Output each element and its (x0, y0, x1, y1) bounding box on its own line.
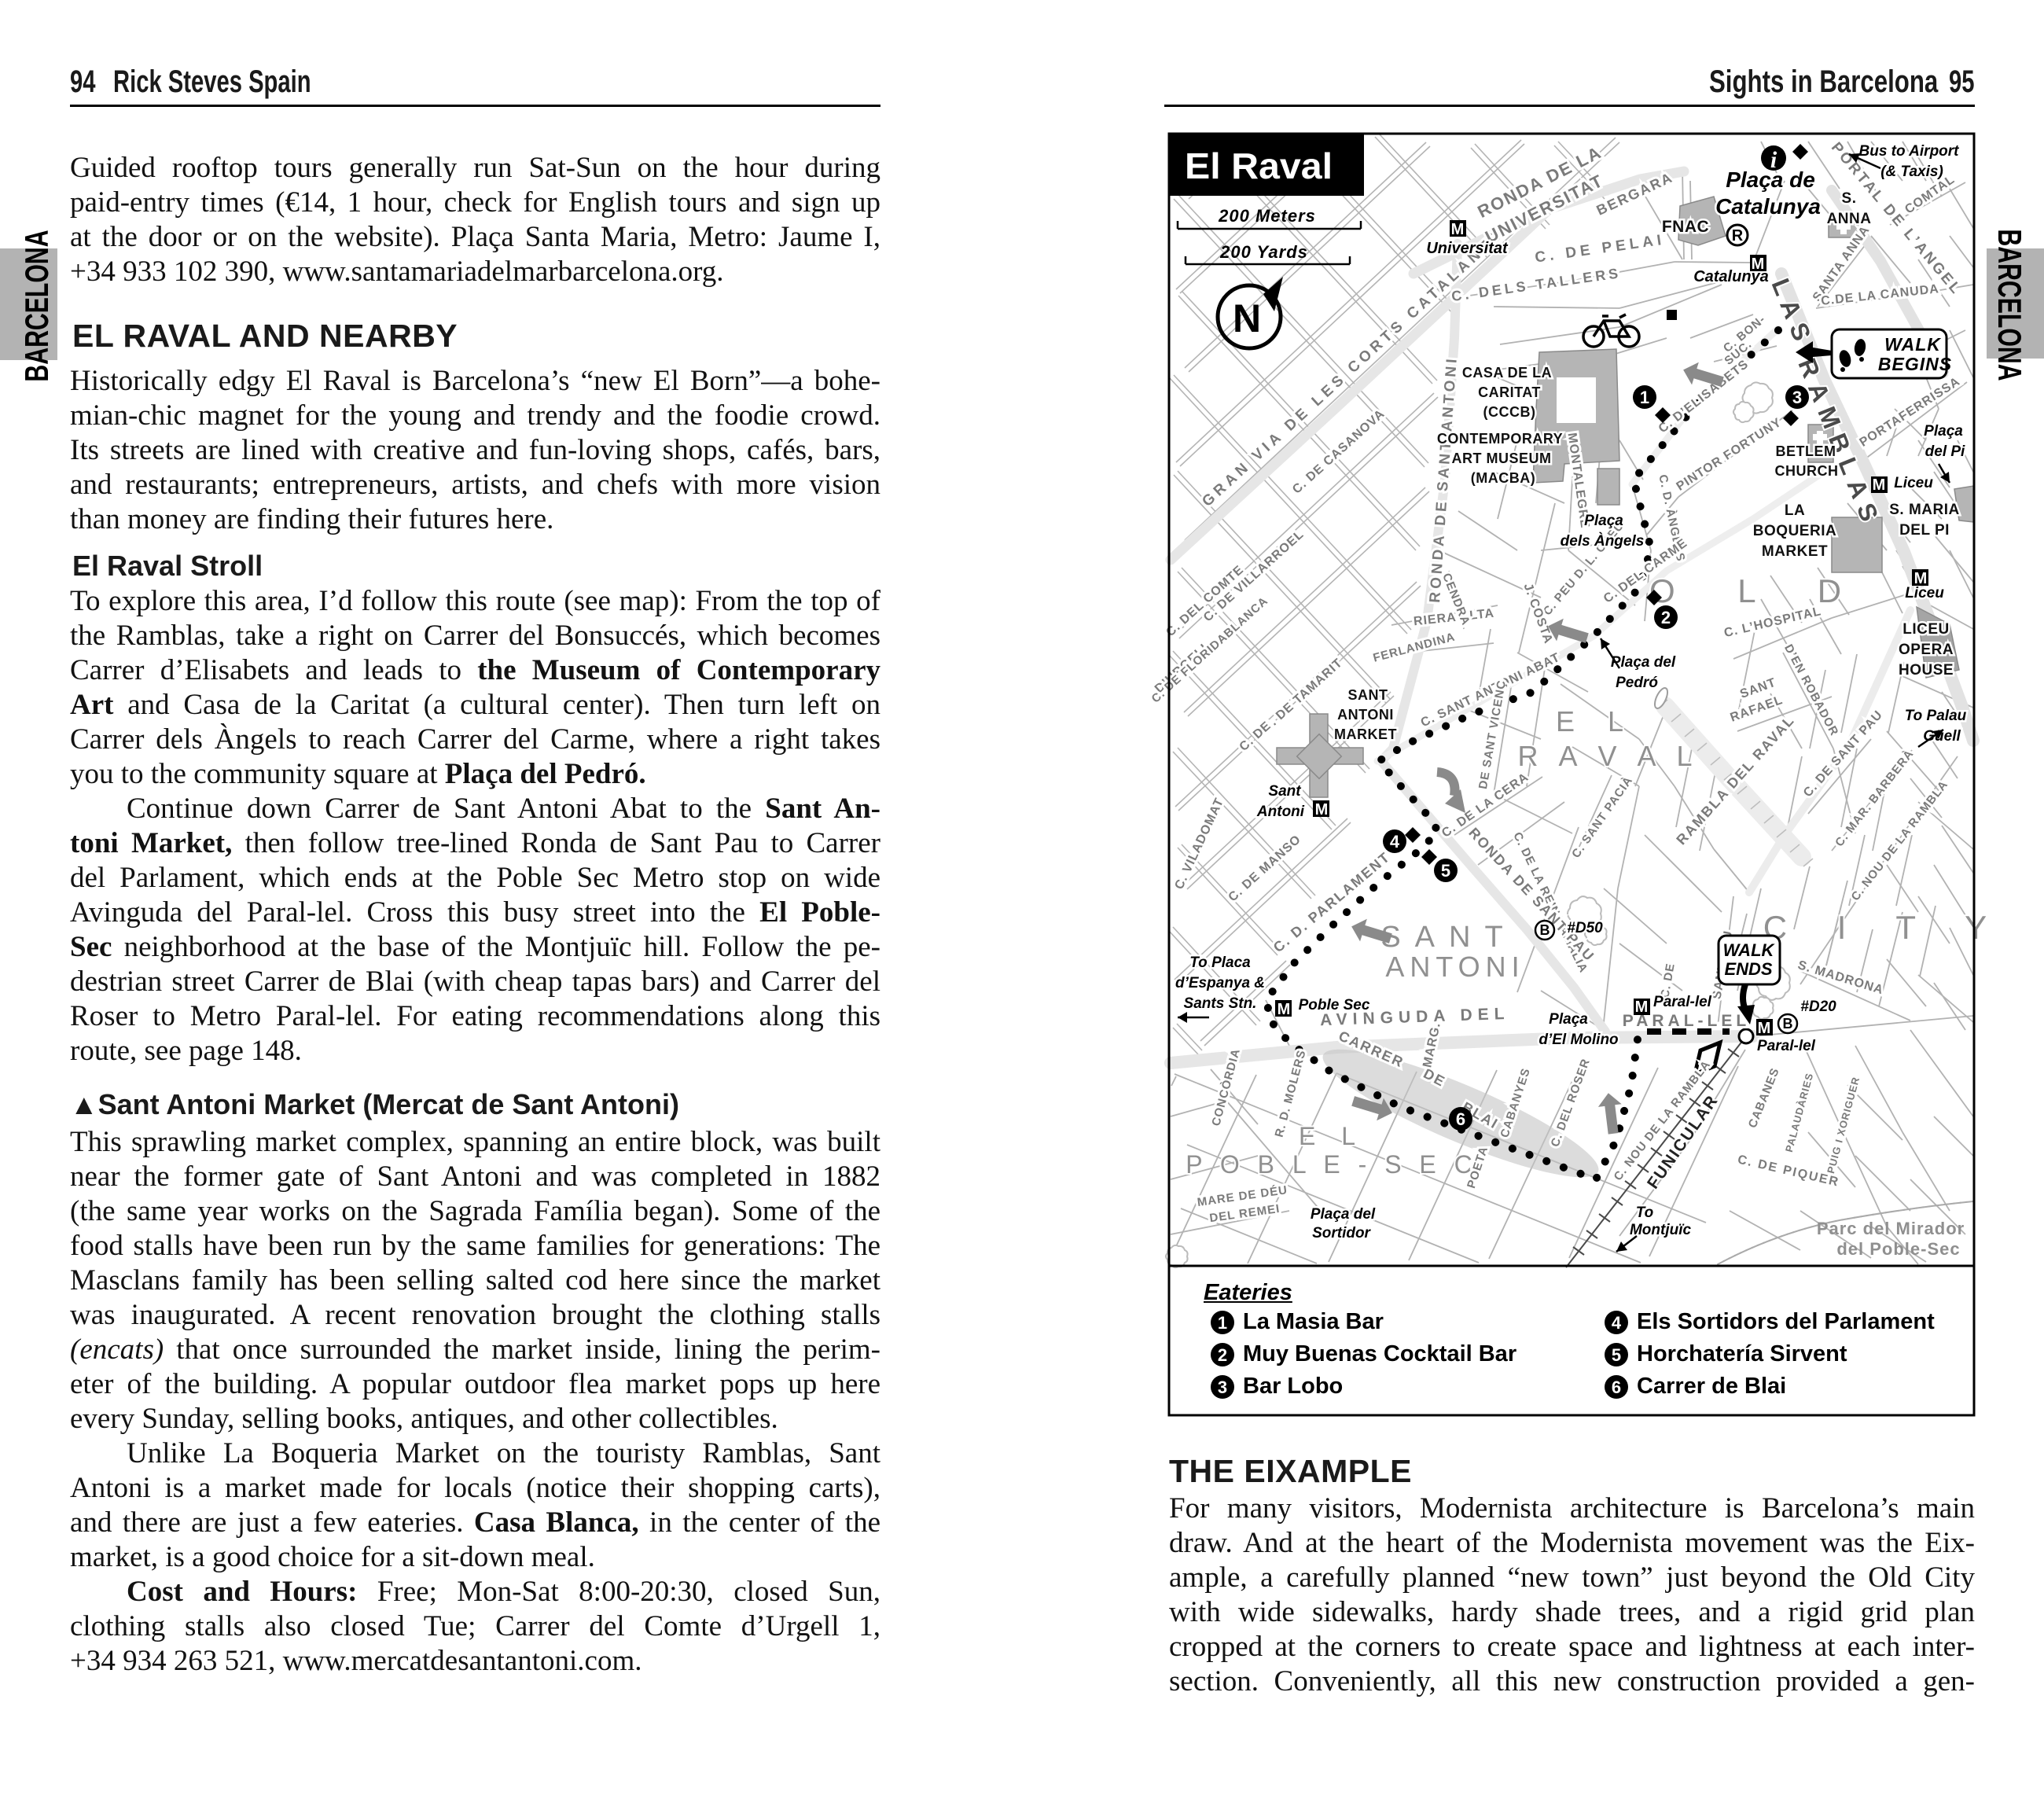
svg-text:Liceu: Liceu (1894, 475, 1933, 491)
svg-text:dels Àngels: dels Àngels (1561, 532, 1645, 550)
svg-text:200 Yards: 200 Yards (1219, 242, 1308, 262)
svg-text:Pedró: Pedró (1616, 675, 1658, 691)
svg-text:El Raval: El Raval (1185, 145, 1333, 186)
svg-text:Sortidor: Sortidor (1312, 1225, 1371, 1241)
svg-text:B: B (1540, 922, 1550, 938)
svg-text:WALK: WALK (1723, 940, 1776, 960)
svg-text:DEL PI: DEL PI (1899, 522, 1950, 539)
svg-text:LA: LA (1785, 502, 1805, 519)
svg-text:1: 1 (1218, 1313, 1227, 1333)
svg-text:SANT: SANT (1348, 687, 1388, 703)
svg-text:Antoni: Antoni (1256, 804, 1305, 820)
svg-text:BOQUERIA: BOQUERIA (1753, 523, 1836, 539)
svg-text:Plaça del: Plaça del (1611, 654, 1676, 671)
svg-text:ANTONI: ANTONI (1337, 707, 1394, 723)
svg-text:ANNA: ANNA (1827, 211, 1872, 227)
svg-text:M: M (1914, 570, 1928, 587)
svg-text:200 Meters: 200 Meters (1218, 206, 1316, 226)
svg-text:B: B (1783, 1016, 1793, 1032)
svg-text:OPERA: OPERA (1899, 642, 1954, 658)
svg-text:M: M (1315, 801, 1329, 818)
svg-text:C I T Y: C I T Y (1763, 909, 2007, 946)
svg-text:CASA DE LA: CASA DE LA (1462, 365, 1552, 381)
svg-text:4: 4 (1390, 832, 1400, 851)
svg-text:To Placa: To Placa (1189, 954, 1251, 971)
svg-text:SANT: SANT (1380, 921, 1516, 954)
svg-text:E L: E L (1299, 1122, 1365, 1150)
svg-text:d’El Molino: d’El Molino (1539, 1032, 1618, 1048)
svg-text:4: 4 (1612, 1313, 1622, 1333)
svg-text:S.: S. (1842, 190, 1857, 207)
svg-text:Liceu: Liceu (1905, 585, 1944, 601)
svg-text:E L: E L (1556, 705, 1636, 737)
svg-text:Plaça: Plaça (1584, 513, 1623, 529)
svg-text:i: i (1770, 147, 1777, 173)
svg-text:Plaça del: Plaça del (1311, 1206, 1376, 1223)
svg-text:Parc del Mirador: Parc del Mirador (1817, 1219, 1965, 1238)
svg-text:CARITAT: CARITAT (1478, 384, 1541, 400)
svg-text:To Palau: To Palau (1905, 708, 1967, 724)
svg-text:(MACBA): (MACBA) (1471, 470, 1535, 486)
svg-text:2: 2 (1218, 1345, 1227, 1365)
svg-text:M: M (1752, 256, 1765, 273)
svg-text:Universitat: Universitat (1426, 240, 1509, 257)
svg-text:5: 5 (1612, 1345, 1621, 1365)
svg-text:Sants Stn.: Sants Stn. (1184, 995, 1257, 1012)
svg-text:R A V A L: R A V A L (1517, 740, 1699, 772)
svg-text:ENDS: ENDS (1724, 959, 1772, 979)
svg-text:Plaça: Plaça (1549, 1011, 1588, 1028)
svg-text:CHURCH: CHURCH (1775, 463, 1839, 479)
svg-text:To: To (1636, 1205, 1654, 1221)
svg-text:WALK: WALK (1884, 334, 1941, 355)
svg-text:Plaça: Plaça (1924, 423, 1963, 440)
svg-text:1: 1 (1640, 388, 1649, 407)
svg-text:del Pi: del Pi (1925, 443, 1965, 460)
svg-text:Montjuïc: Montjuïc (1630, 1222, 1692, 1238)
svg-text:(& Taxis): (& Taxis) (1880, 164, 1943, 180)
svg-text:5: 5 (1441, 861, 1450, 881)
svg-text:6: 6 (1612, 1377, 1621, 1397)
svg-text:M: M (1635, 999, 1649, 1016)
svg-text:ANTONI: ANTONI (1385, 951, 1524, 983)
svg-text:MARKET: MARKET (1334, 726, 1397, 742)
svg-text:Catalunya: Catalunya (1715, 194, 1821, 219)
svg-text:LICEU: LICEU (1902, 621, 1950, 638)
svg-text:d’Espanya &: d’Espanya & (1175, 975, 1265, 991)
svg-text:6: 6 (1456, 1109, 1465, 1129)
svg-text:Paral-lel: Paral-lel (1757, 1038, 1816, 1054)
svg-text:R: R (1732, 227, 1744, 245)
svg-text:N: N (1233, 296, 1261, 340)
svg-text:del Poble-Sec: del Poble-Sec (1836, 1239, 1960, 1259)
svg-text:BEGINS: BEGINS (1878, 354, 1952, 374)
svg-text:Sant: Sant (1268, 783, 1301, 800)
svg-text:Poble Sec: Poble Sec (1299, 997, 1370, 1013)
svg-text:ART MUSEUM: ART MUSEUM (1452, 451, 1552, 466)
svg-text:3: 3 (1218, 1377, 1227, 1397)
svg-text:(CCCB): (CCCB) (1483, 404, 1536, 420)
svg-text:CONTEMPORARY: CONTEMPORARY (1437, 431, 1563, 447)
svg-text:Paral-lel: Paral-lel (1653, 994, 1712, 1010)
svg-text:Bus to Airport: Bus to Airport (1858, 143, 1959, 160)
svg-text:S. MARIA: S. MARIA (1889, 502, 1960, 518)
svg-text:#D50: #D50 (1567, 920, 1603, 936)
svg-text:2: 2 (1661, 608, 1671, 627)
svg-text:3: 3 (1792, 388, 1802, 407)
svg-text:P O B L E - S E C: P O B L E - S E C (1186, 1150, 1478, 1179)
svg-text:M: M (1758, 1020, 1771, 1037)
svg-text:M: M (1277, 1001, 1291, 1018)
svg-text:MARKET: MARKET (1762, 543, 1828, 560)
svg-text:BETLEM: BETLEM (1776, 443, 1836, 459)
svg-text:M: M (1451, 221, 1465, 238)
svg-text:O L D: O L D (1649, 572, 1868, 609)
svg-text:#D20: #D20 (1800, 999, 1836, 1015)
svg-text:HOUSE: HOUSE (1899, 662, 1954, 679)
svg-text:M: M (1873, 476, 1886, 494)
svg-text:FNAC: FNAC (1662, 218, 1709, 236)
